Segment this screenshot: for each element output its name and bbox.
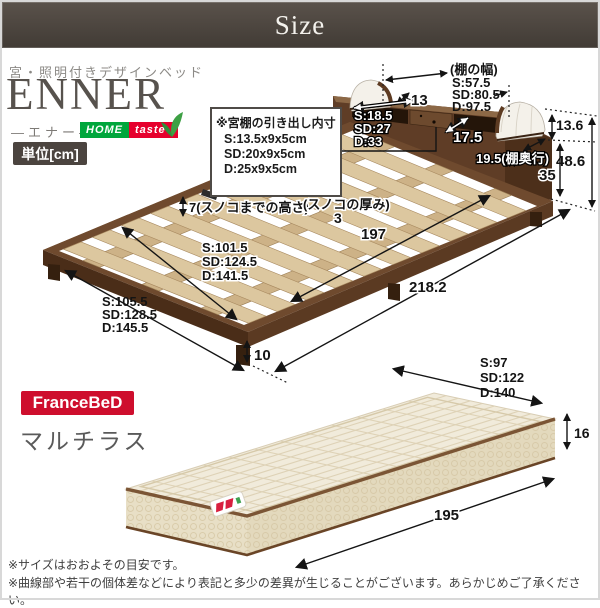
drawer-box-title: ※宮棚の引き出し内寸 (216, 114, 340, 131)
drawer-box-sd: SD:20x9x5cm (224, 147, 340, 161)
drawer-box-d: D:25x9x5cm (224, 162, 340, 176)
slat-area-length-label: 197 (361, 226, 386, 243)
mattress-length-label: 195 (434, 507, 459, 524)
bed-leg (236, 345, 250, 366)
lamp-height-label: 13.6 (556, 117, 583, 133)
mattress-width-s: S:97 (480, 355, 507, 370)
product-name: ENNER (6, 72, 166, 117)
bed-leg (48, 264, 60, 281)
page-title: Size (275, 10, 326, 41)
footnote-1: ※サイズはおおよその目安です。 (8, 556, 185, 573)
leaf-icon (160, 111, 184, 139)
drawer-box-s: S:13.5x9x5cm (224, 132, 340, 146)
mattress-illustration (126, 393, 555, 555)
shelf-depth-label: 19.5(棚奥行) (476, 151, 549, 166)
outer-width-d: D:145.5 (102, 320, 148, 335)
leg-height-label: 10 (254, 347, 271, 364)
header-bar: Size (2, 2, 598, 48)
francebed-logo: FranceBeD (21, 391, 134, 415)
slat-thickness-caption: (スノコの厚み) (303, 197, 390, 212)
logo-home-label: HOME (80, 122, 129, 138)
slat-clearance-label: 7(スノコまでの高さ) (189, 200, 309, 215)
shelf-width-d: D:97.5 (452, 99, 491, 114)
headboard-body-height-label: 35 (539, 167, 556, 184)
slat-thickness-label: 3 (334, 210, 342, 226)
headboard-lamp-right (496, 102, 545, 141)
total-length-label: 218.2 (409, 279, 447, 296)
bed-leg (388, 283, 400, 301)
mattress-series-name: マルチラス (20, 422, 150, 456)
footnote-2: ※曲線部や若干の個体差などにより表記と多少の差異が生じることがございます。あらか… (8, 574, 600, 608)
inner-width-d: D:141.5 (202, 268, 248, 283)
unit-label: 単位[cm] (13, 142, 87, 165)
mattress-width-d: D:140 (480, 385, 515, 400)
headboard-total-height-label: 48.6 (556, 153, 585, 170)
shelf-front-depth-label: 17.5 (453, 129, 482, 146)
bed-leg (530, 212, 542, 227)
lamp-width-label: 13 (411, 92, 428, 109)
drawer-dimension-box: ※宮棚の引き出し内寸 S:13.5x9x5cm SD:20x9x5cm D:25… (210, 107, 342, 197)
mattress-height-label: 16 (574, 425, 590, 441)
shelf-inner-d: D:33 (354, 134, 382, 149)
inner-width-s: S:101.5 (202, 240, 248, 255)
inner-width-sd: SD:124.5 (202, 254, 257, 269)
mattress-width-sd: SD:122 (480, 370, 524, 385)
